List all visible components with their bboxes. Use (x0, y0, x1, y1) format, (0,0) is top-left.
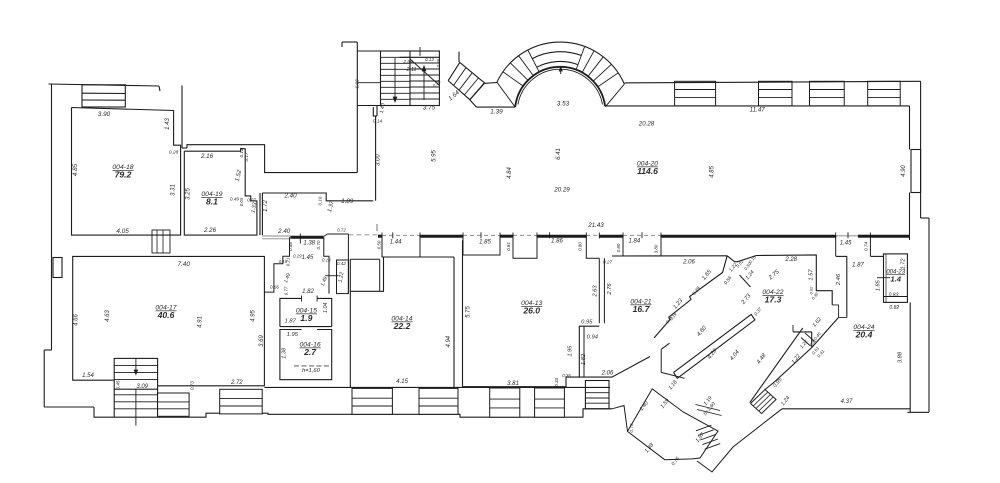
svg-text:3.80: 3.80 (654, 244, 659, 253)
svg-text:3.53: 3.53 (557, 101, 570, 108)
svg-text:20.4: 20.4 (855, 329, 873, 339)
svg-text:0.75: 0.75 (629, 423, 635, 433)
svg-text:4.84: 4.84 (507, 167, 513, 179)
svg-text:0.72: 0.72 (337, 228, 346, 233)
svg-text:0.74: 0.74 (863, 242, 869, 252)
svg-text:2.84: 2.84 (402, 59, 413, 65)
svg-text:2.76: 2.76 (607, 283, 613, 296)
svg-text:22.2: 22.2 (393, 321, 411, 331)
svg-text:1.38: 1.38 (282, 347, 288, 359)
svg-text:2.40: 2.40 (283, 193, 297, 200)
svg-text:4.15: 4.15 (396, 379, 408, 385)
svg-text:1.4: 1.4 (890, 274, 901, 283)
svg-text:4.95: 4.95 (251, 310, 257, 322)
svg-text:2.72: 2.72 (230, 380, 243, 386)
svg-text:2.26: 2.26 (203, 227, 217, 234)
svg-text:2.06: 2.06 (601, 371, 614, 377)
svg-text:1.82: 1.82 (581, 353, 587, 365)
svg-text:2.06: 2.06 (682, 260, 695, 266)
svg-text:1.39: 1.39 (490, 109, 503, 116)
svg-text:0.80: 0.80 (616, 243, 621, 252)
svg-text:0.81: 0.81 (506, 242, 511, 251)
svg-text:8.1: 8.1 (206, 196, 218, 206)
svg-text:6.41: 6.41 (556, 148, 562, 160)
svg-text:26.0: 26.0 (522, 305, 540, 315)
svg-text:1.45: 1.45 (302, 255, 314, 261)
svg-text:3.09: 3.09 (136, 384, 148, 390)
svg-text:0.80: 0.80 (578, 242, 583, 251)
svg-text:7.40: 7.40 (177, 261, 190, 268)
svg-text:4.90: 4.90 (901, 165, 907, 177)
svg-text:1.85: 1.85 (876, 279, 882, 291)
svg-text:4.05: 4.05 (116, 228, 129, 235)
svg-text:0.17: 0.17 (244, 152, 249, 161)
svg-text:1.04: 1.04 (323, 302, 329, 313)
svg-text:1.44: 1.44 (390, 240, 402, 246)
svg-text:0.42: 0.42 (337, 261, 346, 266)
svg-text:0.14: 0.14 (373, 119, 383, 125)
svg-text:3.00: 3.00 (376, 154, 382, 166)
svg-text:1.57: 1.57 (808, 269, 814, 281)
svg-text:0.77: 0.77 (284, 286, 289, 295)
svg-text:21.43: 21.43 (587, 222, 604, 229)
svg-text:0.88: 0.88 (288, 242, 293, 251)
svg-text:3.88: 3.88 (897, 351, 903, 363)
svg-text:1.82: 1.82 (302, 289, 314, 295)
svg-text:1.86: 1.86 (551, 239, 563, 245)
svg-text:2.63: 2.63 (592, 285, 598, 298)
svg-text:0.19: 0.19 (293, 254, 302, 259)
svg-text:4.63: 4.63 (105, 310, 111, 322)
svg-text:0.45: 0.45 (115, 380, 120, 389)
svg-text:0.36: 0.36 (562, 373, 571, 378)
svg-text:0.95: 0.95 (581, 320, 593, 326)
svg-text:0.05: 0.05 (239, 197, 244, 206)
svg-text:0.27: 0.27 (603, 260, 612, 265)
svg-text:0.28: 0.28 (169, 150, 179, 156)
svg-text:1.08: 1.08 (355, 79, 361, 89)
svg-text:1.72: 1.72 (263, 200, 269, 212)
svg-text:1.38: 1.38 (303, 241, 315, 247)
svg-text:0.73: 0.73 (190, 381, 195, 390)
svg-text:1.84: 1.84 (629, 239, 641, 245)
svg-text:2.46: 2.46 (836, 273, 842, 286)
svg-text:16.7: 16.7 (633, 304, 651, 314)
svg-text:4.66: 4.66 (73, 314, 79, 326)
svg-text:1.95: 1.95 (287, 332, 299, 338)
svg-text:114.6: 114.6 (637, 166, 658, 176)
svg-text:2.28: 2.28 (784, 257, 797, 263)
svg-text:0.66: 0.66 (270, 285, 279, 290)
svg-text:0.70: 0.70 (316, 240, 321, 249)
svg-text:2.40: 2.40 (277, 228, 291, 235)
svg-text:0.25: 0.25 (436, 58, 441, 67)
svg-text:0.18: 0.18 (322, 258, 331, 263)
svg-text:1.54: 1.54 (82, 373, 94, 379)
svg-text:0.15: 0.15 (279, 259, 288, 264)
svg-text:4.37: 4.37 (841, 399, 853, 405)
svg-text:0.94: 0.94 (587, 334, 598, 340)
svg-text:h=1,60: h=1,60 (302, 368, 321, 374)
svg-text:3.81: 3.81 (507, 381, 519, 387)
svg-text:20.28: 20.28 (638, 121, 655, 128)
svg-text:3.31: 3.31 (171, 184, 177, 196)
svg-text:0.07: 0.07 (247, 198, 256, 203)
svg-text:4.94: 4.94 (446, 335, 452, 347)
svg-text:3.25: 3.25 (186, 188, 192, 200)
svg-text:0.33: 0.33 (554, 377, 559, 386)
svg-text:1.85: 1.85 (479, 240, 491, 246)
svg-text:1.72: 1.72 (900, 258, 906, 270)
svg-text:5.95: 5.95 (431, 150, 437, 162)
svg-text:11.47: 11.47 (750, 107, 766, 114)
svg-text:1.9: 1.9 (300, 313, 312, 323)
svg-text:1.95: 1.95 (568, 345, 574, 357)
svg-text:40.6: 40.6 (157, 310, 175, 320)
svg-text:4.85: 4.85 (72, 163, 79, 176)
svg-text:1.45: 1.45 (840, 241, 852, 247)
svg-text:3.69: 3.69 (259, 335, 265, 347)
svg-text:1.87: 1.87 (852, 262, 864, 268)
svg-text:3.90: 3.90 (98, 111, 111, 118)
svg-text:0.83: 0.83 (889, 293, 899, 299)
svg-text:0.16: 0.16 (318, 196, 323, 205)
svg-text:1.87: 1.87 (285, 319, 297, 325)
svg-text:1.43: 1.43 (165, 118, 171, 130)
svg-text:20.29: 20.29 (553, 187, 570, 194)
svg-text:0.50: 0.50 (377, 240, 382, 249)
svg-text:0.13: 0.13 (425, 57, 434, 62)
svg-text:79.2: 79.2 (115, 169, 132, 179)
svg-text:4.91: 4.91 (197, 316, 203, 328)
svg-text:2.7: 2.7 (303, 347, 317, 357)
svg-text:2.16: 2.16 (200, 153, 214, 160)
svg-text:17.3: 17.3 (765, 294, 782, 304)
svg-text:5.75: 5.75 (466, 306, 472, 318)
svg-text:1.89: 1.89 (341, 198, 354, 205)
svg-text:3.75: 3.75 (423, 105, 436, 112)
svg-text:4.85: 4.85 (709, 166, 715, 178)
svg-text:0.49: 0.49 (230, 197, 239, 202)
svg-text:0.82: 0.82 (889, 305, 899, 311)
svg-text:2.11: 2.11 (405, 67, 416, 73)
